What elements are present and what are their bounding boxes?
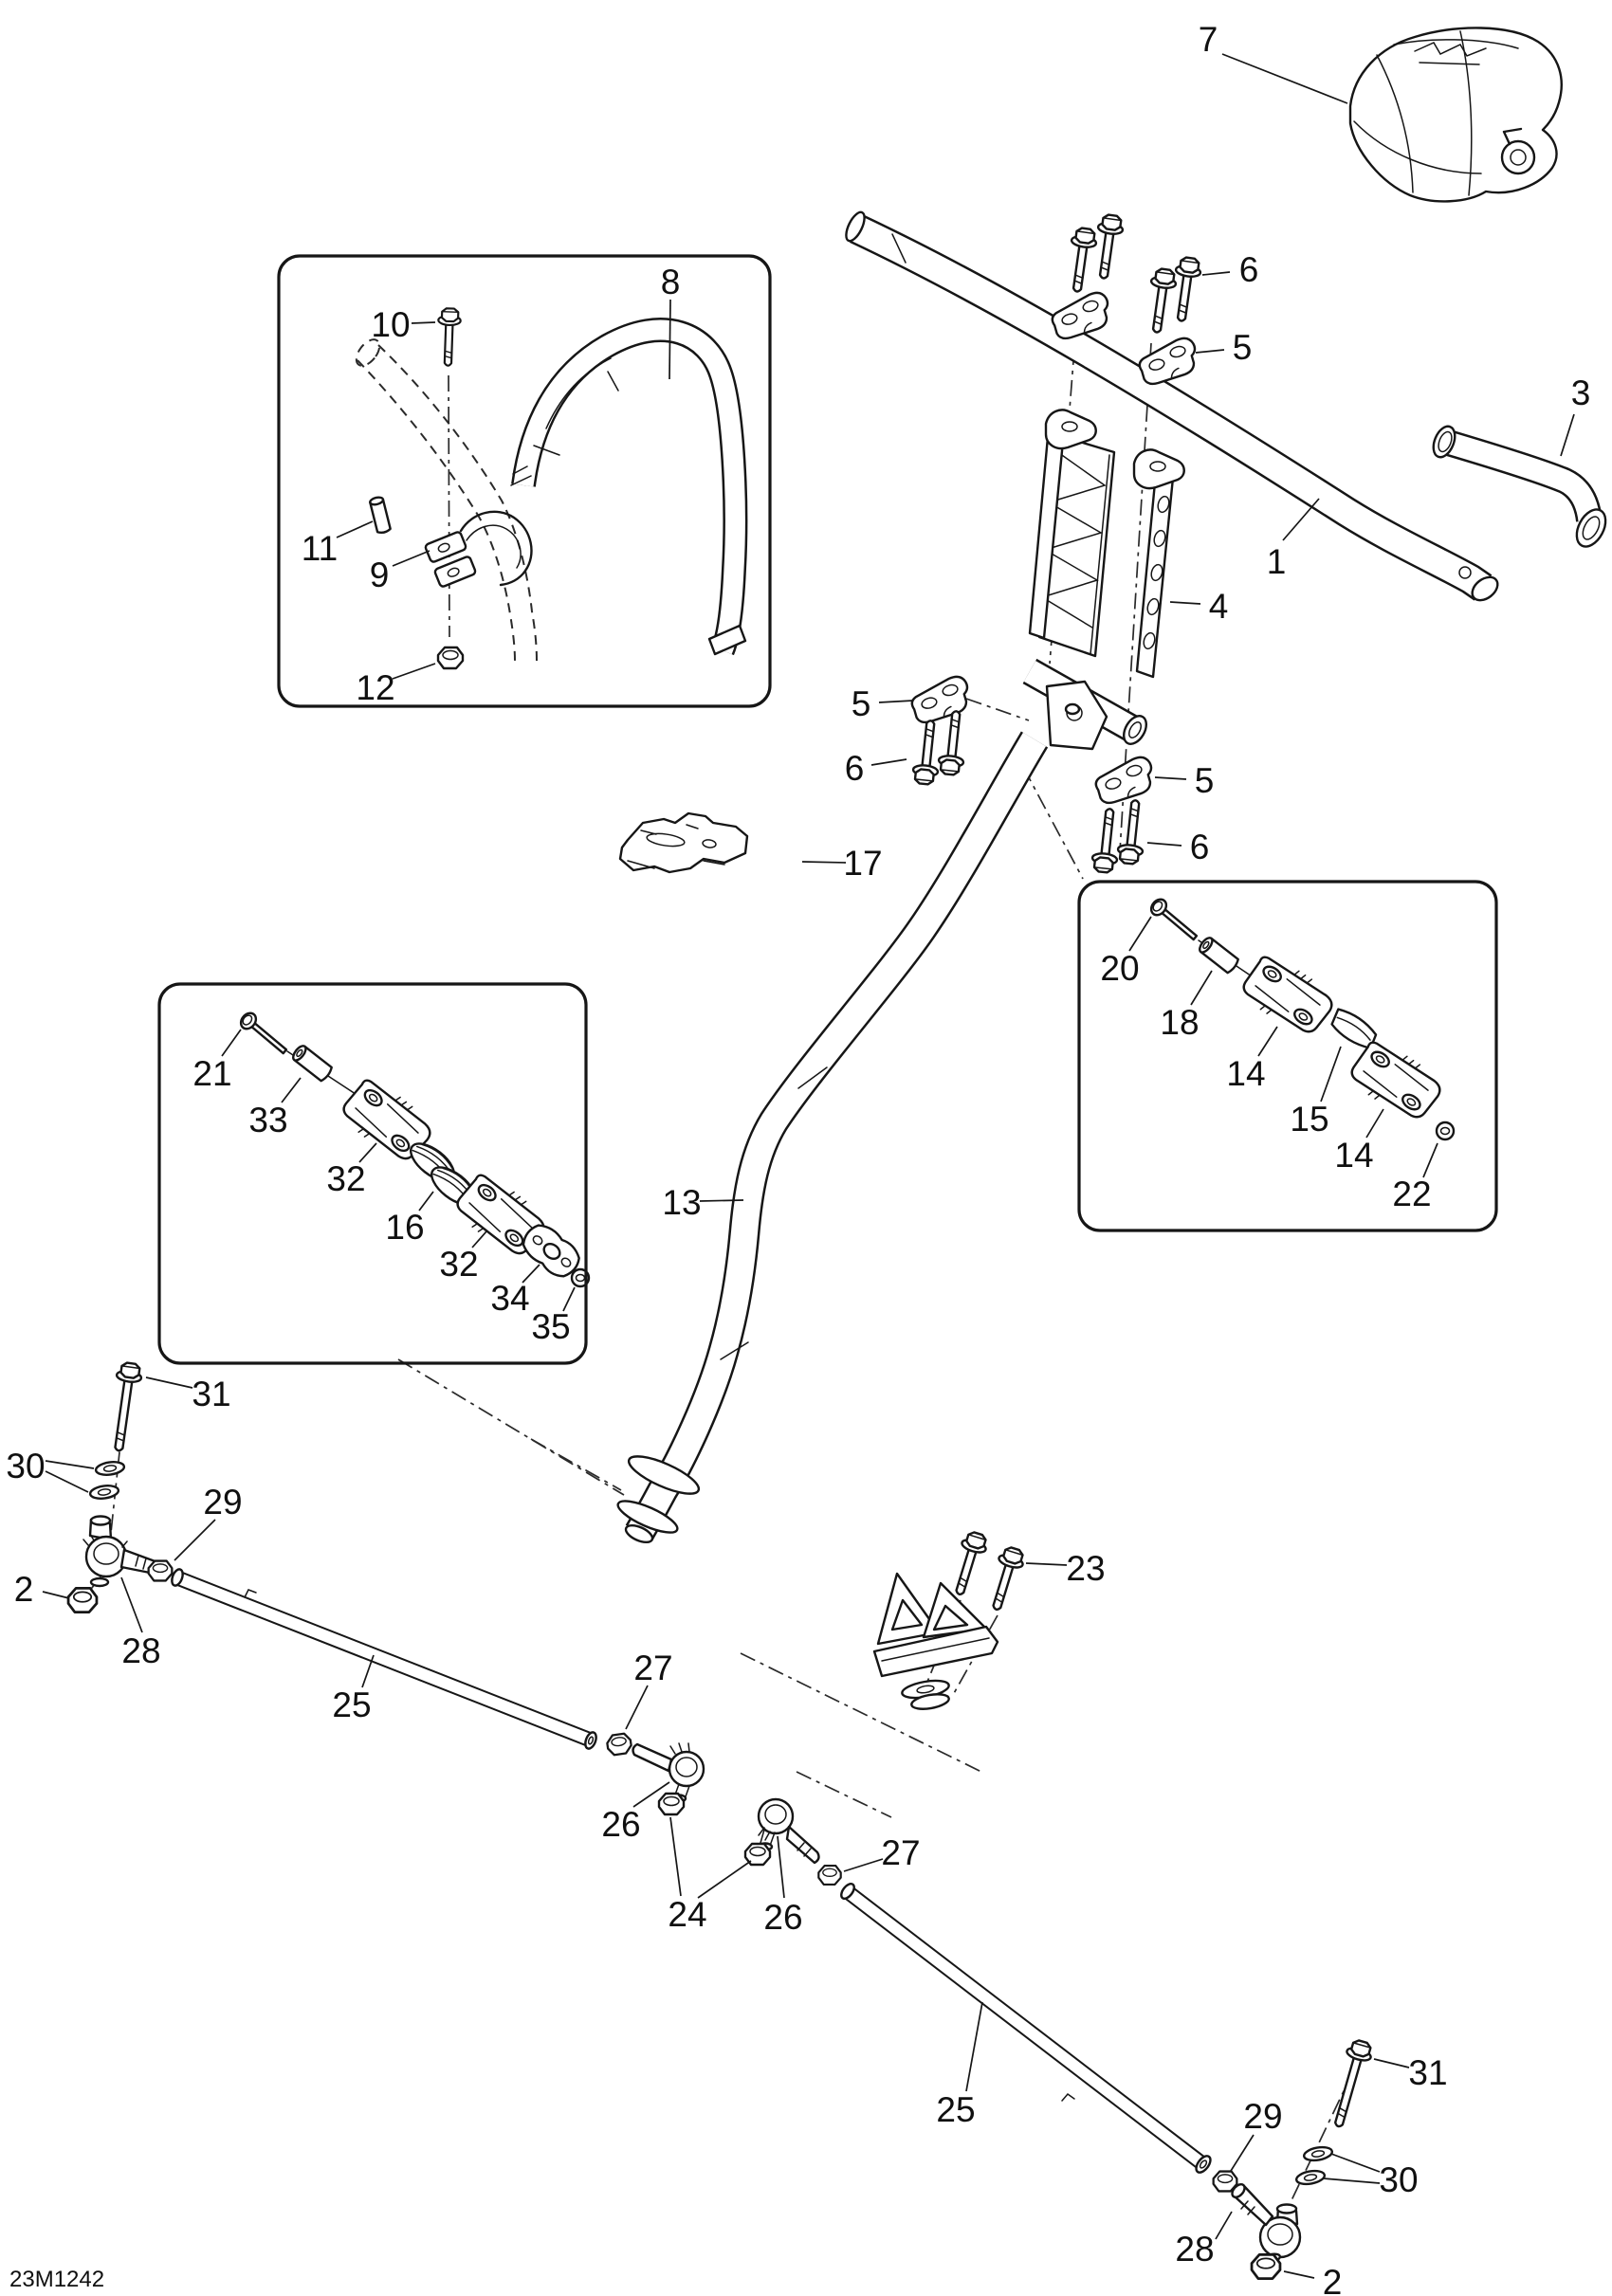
callout-2-33: 2: [14, 1570, 69, 1609]
part-number-label: 22: [1392, 1175, 1431, 1213]
part-number-label: 23: [1066, 1549, 1105, 1588]
callout-21-17: 21: [192, 1030, 241, 1093]
roll-pin: [369, 496, 391, 534]
column-bracket: [1047, 682, 1107, 749]
leader-line: [121, 1577, 142, 1632]
leader-line: [46, 1471, 88, 1492]
leader-line: [1202, 272, 1230, 275]
leader-line: [1147, 843, 1182, 846]
leader-line: [802, 862, 846, 863]
callout-5-13: 5: [1155, 761, 1214, 800]
leader-line: [700, 1200, 743, 1201]
leader-line: [337, 521, 373, 538]
callout-28-34: 28: [121, 1577, 161, 1670]
callout-16-20: 16: [385, 1192, 433, 1247]
callout-14-26: 14: [1226, 1027, 1277, 1093]
part-number-label: 12: [356, 668, 394, 707]
part-number-label: 18: [1160, 1003, 1199, 1042]
callout-29-32: 29: [174, 1483, 243, 1560]
part-number-label: 27: [881, 1833, 920, 1872]
callout-7-0: 7: [1199, 20, 1347, 103]
leader-line: [1231, 2135, 1254, 2171]
support-plate: [620, 813, 747, 872]
leader-line: [282, 1078, 301, 1102]
leader-line: [1155, 777, 1186, 779]
callout-6-12: 6: [845, 749, 907, 788]
leader-line: [1321, 1047, 1341, 1102]
leader-line: [1324, 2178, 1380, 2183]
callout-35-23: 35: [531, 1287, 575, 1346]
leader-line: [1129, 917, 1151, 951]
callout-17-15: 17: [802, 844, 883, 883]
callout-10-6: 10: [371, 305, 435, 344]
leader-line: [1191, 971, 1212, 1005]
callout-30-31: 30: [6, 1447, 94, 1492]
leader-line: [46, 1461, 94, 1468]
parts-diagram-page: 7653181011912456561713213332163234352018…: [0, 0, 1612, 2296]
callout-3-3: 3: [1561, 374, 1590, 456]
leader-line: [1258, 1027, 1277, 1056]
leader-line: [626, 1686, 648, 1729]
callout-30-45: 30: [1324, 2154, 1419, 2199]
callout-14-28: 14: [1334, 1109, 1383, 1175]
callout-6-14: 6: [1147, 828, 1209, 866]
callout-5-11: 5: [852, 684, 913, 723]
callout-1-4: 1: [1267, 499, 1319, 581]
leader-line: [778, 1836, 784, 1898]
callout-26-38: 26: [601, 1782, 669, 1844]
part-number-label: 28: [1175, 2230, 1214, 2269]
leader-line: [1374, 2059, 1409, 2068]
callout-11-7: 11: [302, 521, 373, 568]
part-number-label: 27: [633, 1649, 672, 1687]
hook-detail-content: [352, 308, 745, 668]
part-number-label: 13: [662, 1183, 701, 1222]
leader-line: [669, 300, 670, 379]
grip-tube: [1429, 423, 1611, 551]
leader-line: [1331, 2154, 1380, 2172]
part-number-label: 1: [1267, 542, 1287, 581]
callout-22-29: 22: [1392, 1143, 1438, 1213]
steering-arm-bracket: [874, 1530, 1027, 1712]
leader-line: [1423, 1143, 1438, 1177]
part-number-label: 7: [1199, 20, 1218, 59]
leader-line: [966, 2002, 982, 2091]
callout-4-10: 4: [1170, 587, 1228, 626]
leader-line: [1561, 414, 1574, 456]
part-number-label: 17: [843, 844, 882, 883]
part-number-label: 2: [1323, 2263, 1343, 2296]
leader-line: [698, 1861, 751, 1898]
middle-link-assembly: [606, 1733, 840, 1885]
callout-6-1: 6: [1202, 250, 1258, 289]
part-number-label: 35: [531, 1307, 570, 1346]
leader-line: [1170, 602, 1200, 604]
part-number-label: 21: [192, 1054, 231, 1093]
exploded-parts-diagram: 7653181011912456561713213332163234352018…: [0, 0, 1612, 2296]
callout-24-39: 24: [668, 1817, 751, 1934]
leader-line: [393, 551, 430, 566]
part-number-label: 24: [668, 1895, 706, 1934]
part-number-label: 26: [601, 1805, 640, 1844]
leader-line: [1196, 350, 1224, 353]
part-number-label: 15: [1290, 1100, 1328, 1139]
part-number-label: 28: [121, 1631, 160, 1670]
part-number-label: 3: [1571, 374, 1591, 412]
part-number-label: 26: [763, 1898, 802, 1937]
part-number-label: 20: [1100, 949, 1139, 988]
leader-line: [1216, 2212, 1232, 2239]
callout-9-8: 9: [370, 551, 430, 594]
part-number-label: 6: [1239, 250, 1259, 289]
right-tie-rod-assembly: [839, 1882, 1375, 2279]
leader-line: [1222, 54, 1347, 103]
leader-line: [412, 322, 435, 323]
callout-32-19: 32: [326, 1143, 376, 1198]
leader-line: [1026, 1563, 1067, 1565]
part-number-label: 33: [248, 1101, 287, 1139]
part-number-label: 8: [661, 263, 681, 301]
callout-32-21: 32: [439, 1231, 486, 1284]
callout-23-36: 23: [1026, 1549, 1106, 1588]
callout-20-24: 20: [1100, 917, 1151, 988]
part-number-label: 9: [370, 556, 390, 594]
leader-line: [879, 701, 913, 702]
part-number-label: 5: [1195, 761, 1215, 800]
leader-line: [1284, 2271, 1314, 2278]
part-number-label: 34: [490, 1279, 529, 1318]
leader-line: [844, 1859, 883, 1871]
leader-line: [43, 1592, 69, 1598]
part-number-label: 4: [1209, 587, 1229, 626]
leader-line: [670, 1817, 681, 1896]
callout-29-44: 29: [1231, 2097, 1283, 2171]
inset-box-lower-tie-clamp-detail: [1079, 882, 1496, 1230]
callout-18-25: 18: [1160, 971, 1212, 1042]
leader-line: [174, 1520, 215, 1560]
leader-line: [1283, 499, 1319, 540]
callout-27-37: 27: [626, 1649, 673, 1729]
handlebar-pad: [1350, 27, 1562, 201]
callout-5-2: 5: [1196, 328, 1252, 367]
callouts: 7653181011912456561713213332163234352018…: [6, 20, 1590, 2296]
part-number-label: 32: [439, 1245, 478, 1284]
callout-31-30: 31: [146, 1375, 231, 1413]
callout-15-27: 15: [1290, 1047, 1341, 1139]
part-number-label: 6: [845, 749, 865, 788]
callout-25-42: 25: [936, 2002, 982, 2129]
part-number-label: 25: [332, 1686, 371, 1724]
leader-line: [393, 664, 435, 679]
callout-31-43: 31: [1374, 2053, 1448, 2092]
part-number-label: 5: [1233, 328, 1253, 367]
part-number-label: 14: [1226, 1054, 1265, 1093]
leader-line: [146, 1377, 192, 1388]
part-number-label: 32: [326, 1159, 365, 1198]
handlebar: [842, 210, 1502, 605]
callout-2-47: 2: [1284, 2263, 1342, 2296]
part-number-label: 14: [1334, 1136, 1373, 1175]
leader-line: [1366, 1109, 1383, 1138]
figure-code: 23M1242: [9, 2267, 104, 2292]
part-number-label: 5: [852, 684, 871, 723]
part-number-label: 2: [14, 1570, 34, 1609]
callout-28-46: 28: [1175, 2212, 1232, 2269]
part-number-label: 25: [936, 2090, 975, 2129]
part-number-label: 29: [1243, 2097, 1282, 2136]
part-number-label: 11: [302, 529, 338, 568]
callout-12-9: 12: [356, 664, 435, 707]
callout-25-35: 25: [332, 1655, 374, 1724]
callout-27-41: 27: [844, 1833, 921, 1872]
part-number-label: 10: [371, 305, 410, 344]
riser-truss: [1030, 410, 1184, 749]
leader-line: [222, 1030, 241, 1056]
part-number-label: 6: [1190, 828, 1210, 866]
part-number-label: 29: [203, 1483, 242, 1522]
part-number-label: 31: [1408, 2053, 1447, 2092]
part-number-label: 30: [1379, 2160, 1418, 2199]
callout-33-18: 33: [248, 1078, 301, 1139]
leader-line: [871, 759, 907, 765]
part-number-label: 31: [192, 1375, 230, 1413]
part-number-label: 30: [6, 1447, 45, 1485]
part-number-label: 16: [385, 1208, 424, 1247]
